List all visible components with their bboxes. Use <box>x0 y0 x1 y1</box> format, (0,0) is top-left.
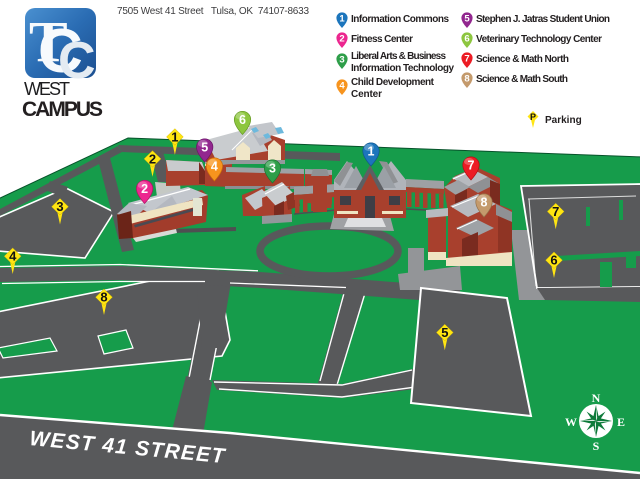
svg-text:Liberal Arts & Business: Liberal Arts & Business <box>351 51 446 62</box>
svg-text:P: P <box>530 112 536 122</box>
svg-text:4: 4 <box>339 81 345 92</box>
svg-text:8: 8 <box>100 290 107 305</box>
svg-text:W: W <box>565 415 577 429</box>
svg-text:2: 2 <box>141 182 148 196</box>
svg-text:Science & Math South: Science & Math South <box>476 74 568 85</box>
svg-text:6: 6 <box>239 113 246 127</box>
svg-text:Science & Math North: Science & Math North <box>476 54 569 65</box>
svg-text:Information Technology: Information Technology <box>351 63 454 74</box>
svg-text:7505 West 41 Street Tulsa, O: 7505 West 41 Street Tulsa, OK 74107-8633 <box>117 6 309 17</box>
svg-text:E: E <box>617 415 625 429</box>
svg-text:6: 6 <box>464 34 469 45</box>
svg-text:7: 7 <box>464 54 469 65</box>
svg-text:N: N <box>592 391 601 405</box>
svg-text:Stephen J. Jatras Student Unio: Stephen J. Jatras Student Union <box>476 14 610 25</box>
svg-text:8: 8 <box>481 196 488 210</box>
svg-text:1: 1 <box>368 145 375 159</box>
svg-text:S: S <box>593 439 600 453</box>
svg-text:5: 5 <box>441 325 448 340</box>
svg-text:Fitness Center: Fitness Center <box>351 34 413 45</box>
svg-text:2: 2 <box>149 151 156 166</box>
svg-text:1: 1 <box>171 129 178 144</box>
svg-text:6: 6 <box>550 253 557 268</box>
svg-text:5: 5 <box>201 141 208 155</box>
svg-text:3: 3 <box>339 55 344 66</box>
svg-text:4: 4 <box>211 160 218 174</box>
svg-text:1: 1 <box>339 14 345 25</box>
svg-text:3: 3 <box>269 162 276 176</box>
svg-text:7: 7 <box>552 204 559 219</box>
svg-text:7: 7 <box>468 159 475 173</box>
svg-text:2: 2 <box>339 34 344 45</box>
svg-text:Veterinary Technology Center: Veterinary Technology Center <box>476 34 602 45</box>
svg-text:5: 5 <box>464 14 470 25</box>
svg-text:3: 3 <box>56 199 63 214</box>
svg-text:WEST: WEST <box>24 79 70 99</box>
svg-text:Center: Center <box>351 89 382 100</box>
svg-text:4: 4 <box>9 249 17 264</box>
svg-text:Information Commons: Information Commons <box>351 14 449 25</box>
svg-text:Child Development: Child Development <box>351 77 435 88</box>
svg-text:Parking: Parking <box>545 115 582 126</box>
svg-text:8: 8 <box>464 74 469 85</box>
svg-text:CAMPUS: CAMPUS <box>22 98 103 121</box>
